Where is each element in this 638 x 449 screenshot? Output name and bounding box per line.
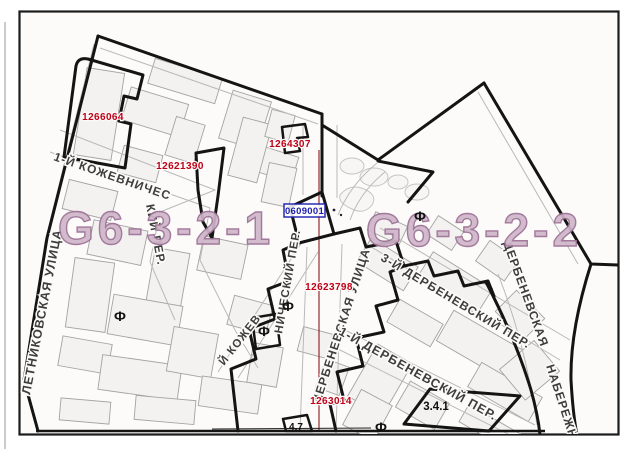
zone-code-right: G6-3-2-2 <box>366 204 582 256</box>
area-label-47: 4.7 <box>289 422 303 433</box>
f-marker: Ф <box>114 308 126 324</box>
scanned-map-page: ЛЕТНИКОВСКАЯ УЛИЦА 1-Й КОЖЕВНИЧЕС КИЙ ПЕ… <box>0 0 638 449</box>
parcel-number-12623798: 12623798 <box>305 282 353 293</box>
cadastral-map: ЛЕТНИКОВСКАЯ УЛИЦА 1-Й КОЖЕВНИЧЕС КИЙ ПЕ… <box>0 0 638 449</box>
survey-dot <box>340 214 342 216</box>
parcel-number-1263014: 1263014 <box>310 396 352 407</box>
f-marker: Ф <box>414 208 426 224</box>
parcel-number-1266064: 1266064 <box>82 112 124 123</box>
f-marker: Ф <box>375 419 387 435</box>
survey-dot <box>333 209 336 212</box>
zone-code-left: G6-3-2-1 <box>58 202 274 254</box>
boundary-point-badge: 0609001 <box>284 204 325 217</box>
boundary-point-number: 0609001 <box>285 206 325 217</box>
scan-edge-line <box>4 22 6 449</box>
f-marker: Ф <box>258 323 270 339</box>
area-label-341: 3.4.1 <box>423 401 449 413</box>
parcel-number-1264307: 1264307 <box>269 139 311 150</box>
f-marker: Ф <box>282 298 294 314</box>
parcel-number-12621390: 12621390 <box>156 161 204 172</box>
